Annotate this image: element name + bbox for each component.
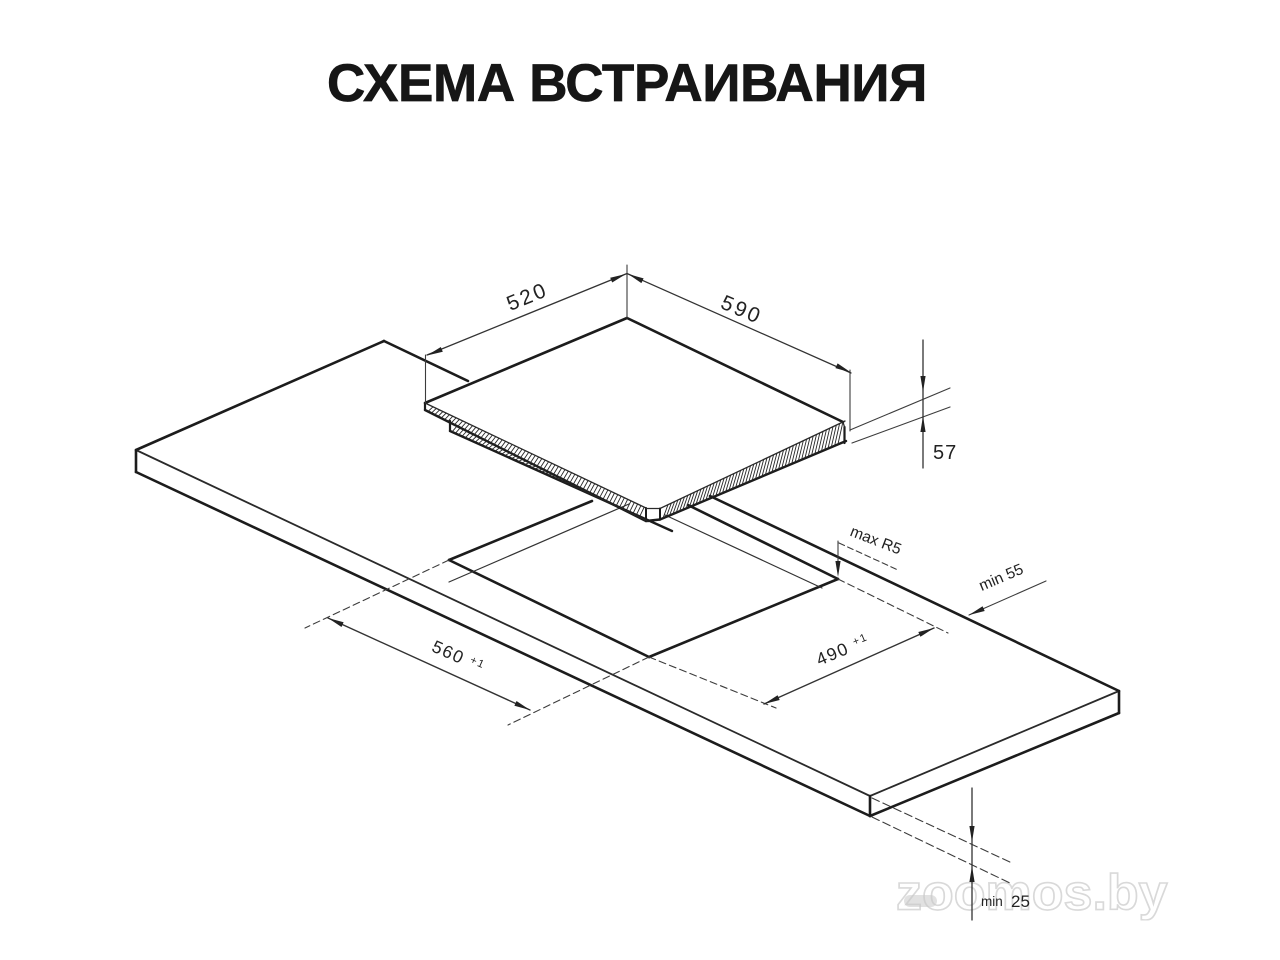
svg-text:57: 57 (933, 442, 957, 464)
svg-text:560 +1: 560 +1 (429, 636, 488, 677)
svg-text:490 +1: 490 +1 (813, 629, 872, 669)
svg-text:25: 25 (1011, 892, 1030, 911)
svg-text:520: 520 (503, 278, 551, 315)
svg-text:min: min (981, 894, 1003, 909)
svg-text:min 55: min 55 (977, 561, 1026, 595)
svg-text:590: 590 (717, 291, 765, 329)
svg-text:max R5: max R5 (848, 523, 904, 558)
